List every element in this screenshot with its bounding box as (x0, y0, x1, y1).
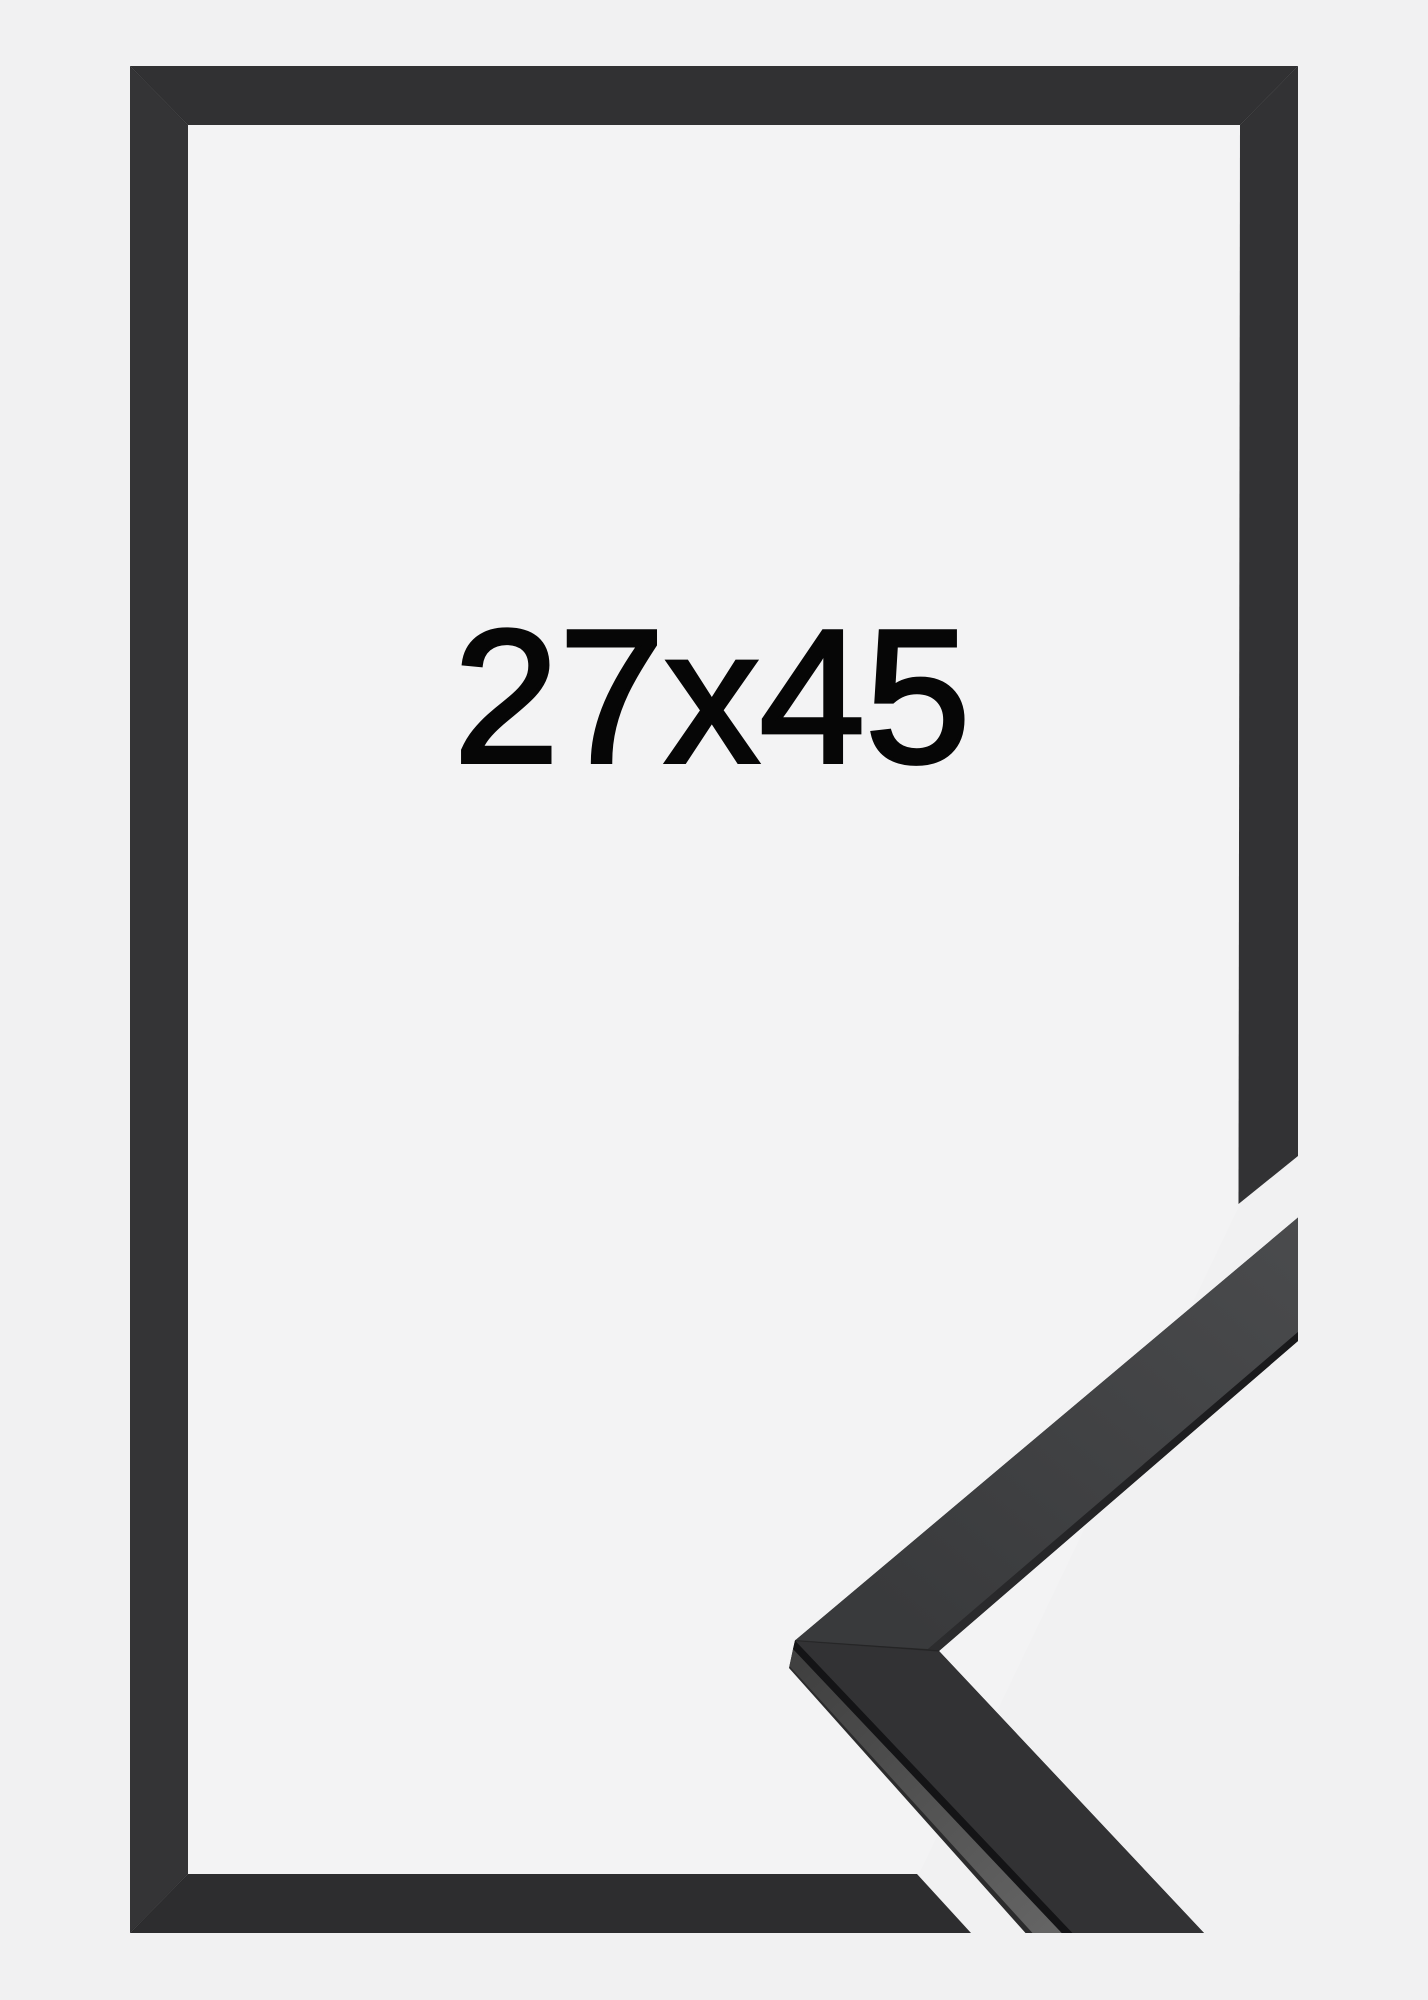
svg-text:27x45: 27x45 (454, 591, 971, 803)
